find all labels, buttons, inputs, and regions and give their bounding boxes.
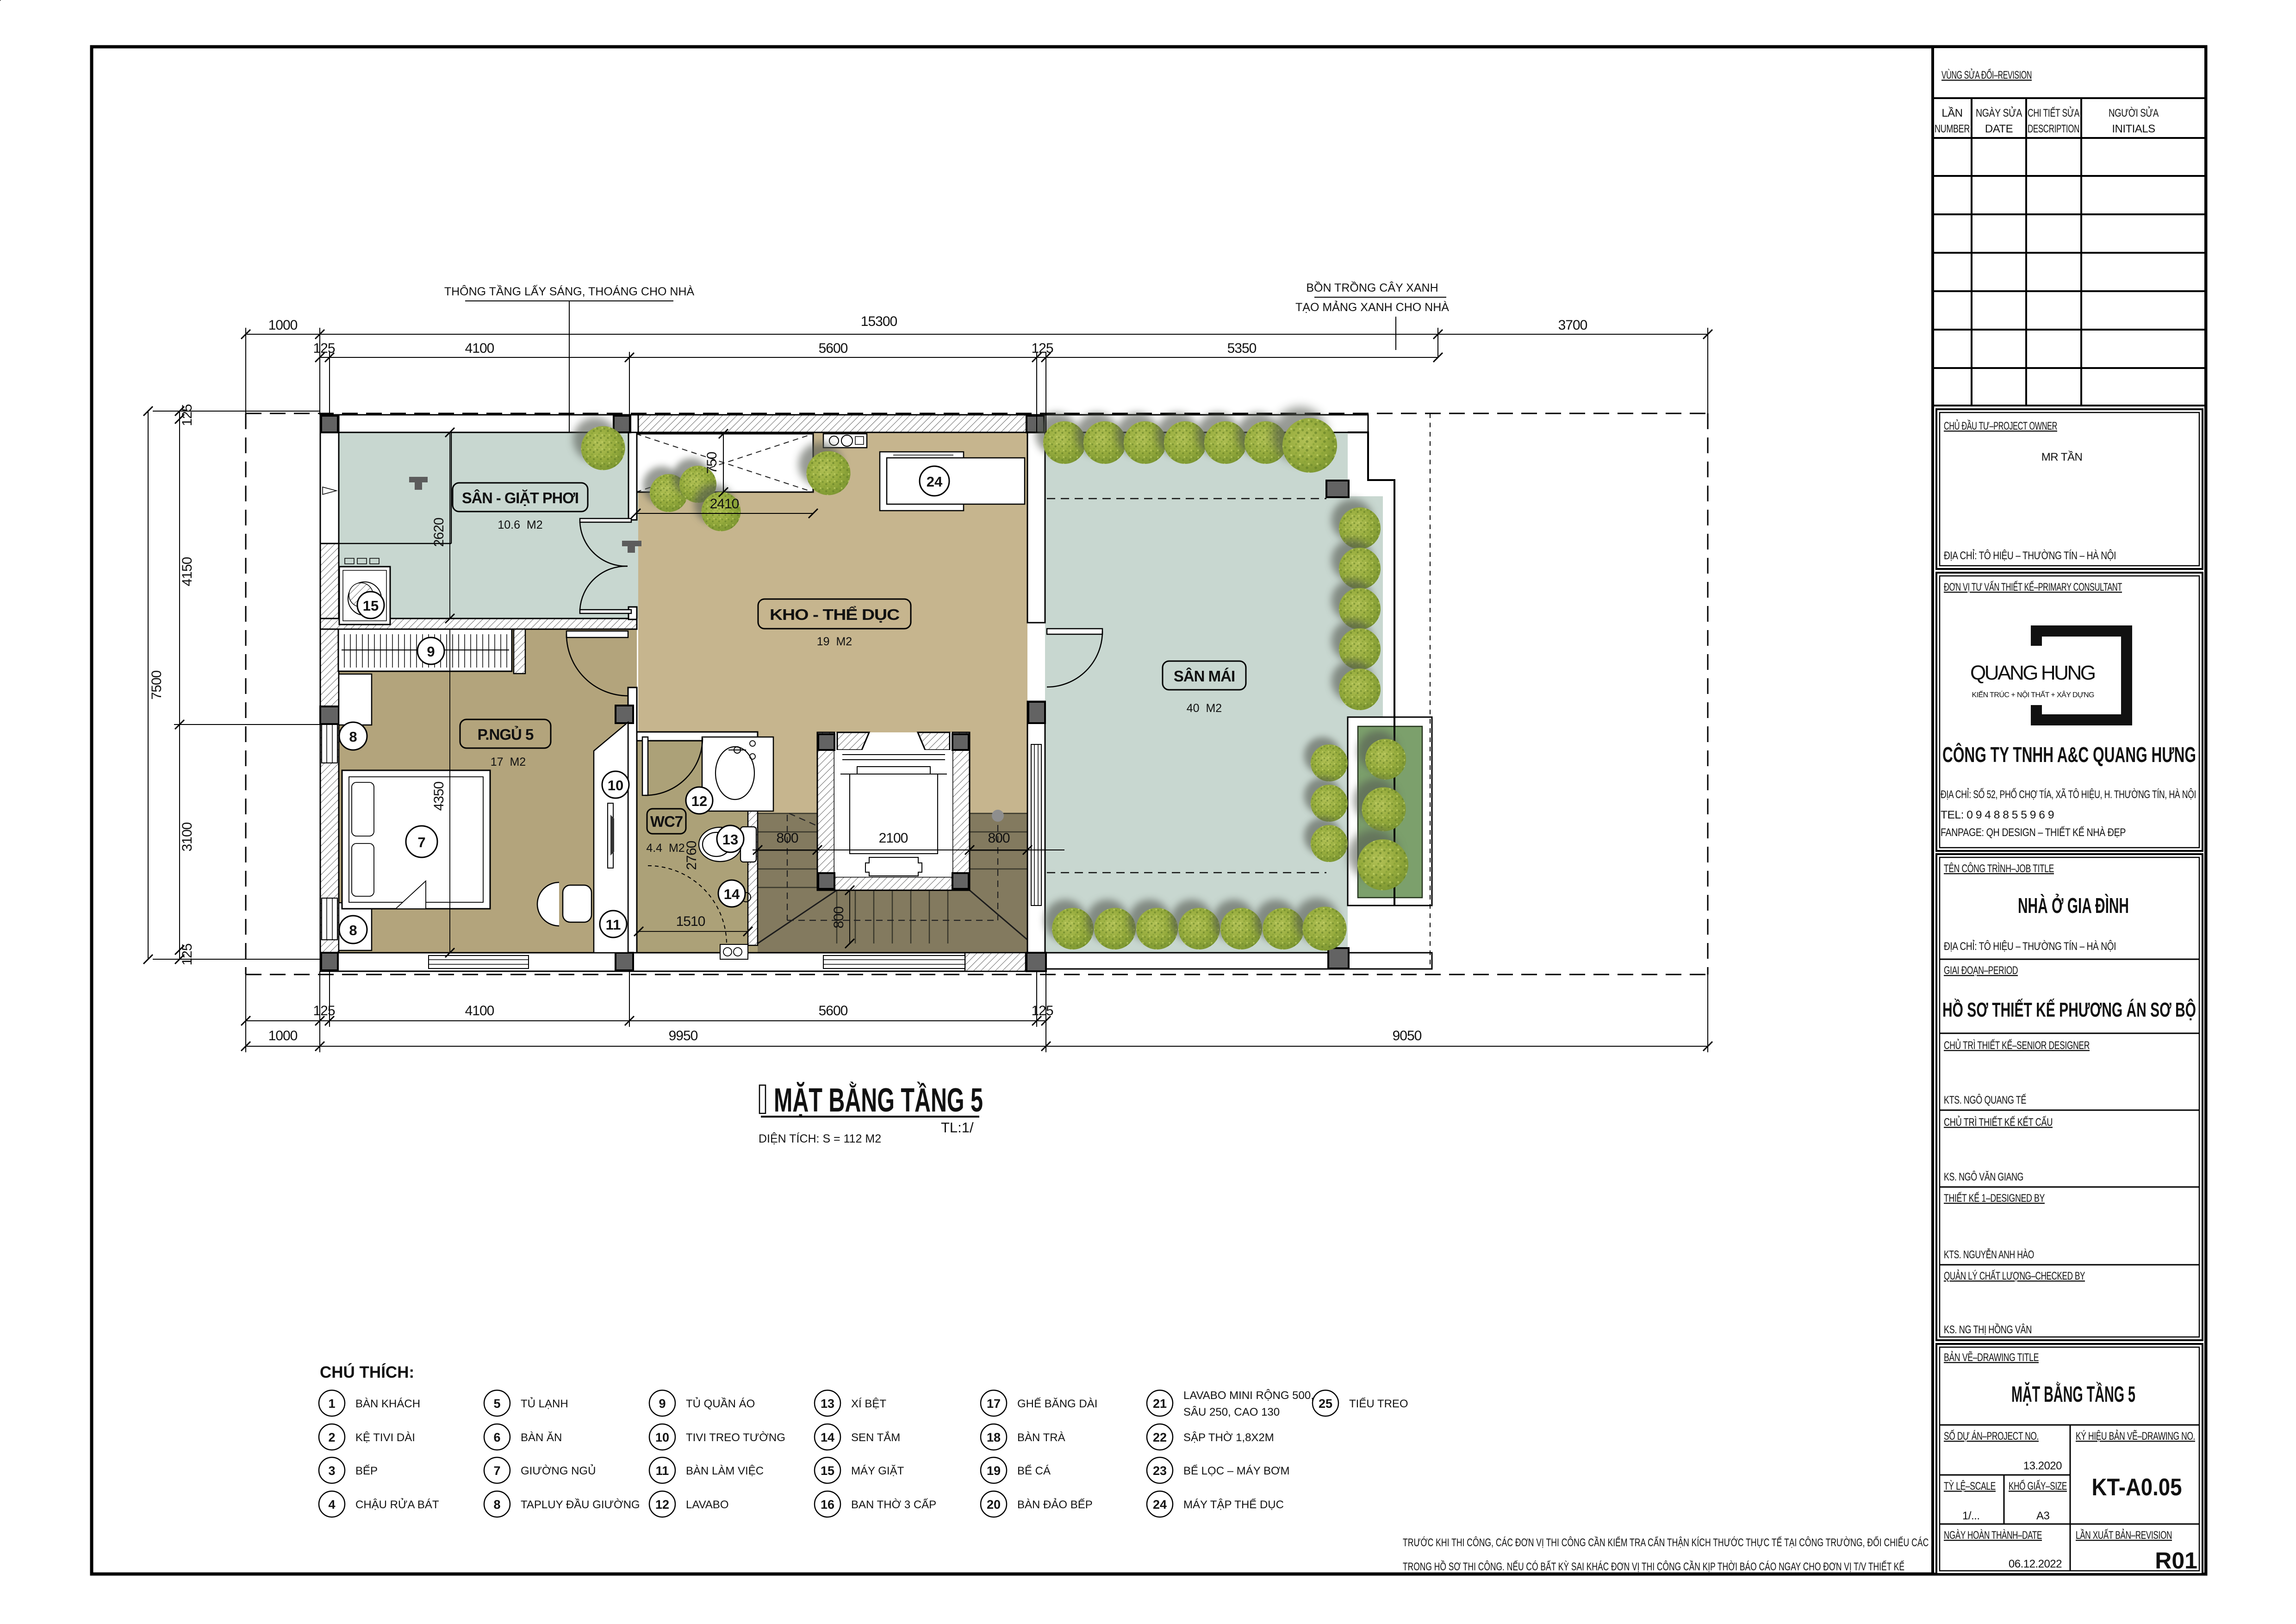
svg-text:TỲ LỆ–SCALE: TỲ LỆ–SCALE	[1944, 1480, 1996, 1493]
svg-text:BẢN VẼ–DRAWING TITLE: BẢN VẼ–DRAWING TITLE	[1944, 1350, 2039, 1364]
svg-text:3100: 3100	[180, 822, 195, 851]
svg-text:CÔNG TY TNHH A&C QUANG HƯNG: CÔNG TY TNHH A&C QUANG HƯNG	[1942, 743, 2196, 767]
svg-text:LAVABO MINI RỘNG 500,: LAVABO MINI RỘNG 500,	[1183, 1389, 1314, 1402]
svg-text:KHO - THỂ DỤC: KHO - THỂ DỤC	[770, 606, 899, 623]
svg-text:BÀN ĂN: BÀN ĂN	[521, 1431, 562, 1444]
svg-text:9050: 9050	[1393, 1028, 1422, 1043]
svg-text:20: 20	[987, 1498, 1001, 1512]
svg-text:SÂN MÁI: SÂN MÁI	[1174, 668, 1235, 685]
svg-text:40 M2: 40 M2	[1187, 702, 1222, 715]
svg-text:17: 17	[987, 1397, 1001, 1411]
svg-text:VÙNG SỬA ĐỔI–REVISION: VÙNG SỬA ĐỔI–REVISION	[1941, 68, 2032, 81]
svg-text:KS. NGÔ VĂN GIANG: KS. NGÔ VĂN GIANG	[1944, 1170, 2023, 1183]
svg-text:1000: 1000	[268, 318, 298, 333]
svg-text:17 M2: 17 M2	[491, 756, 526, 768]
svg-text:15300: 15300	[861, 314, 897, 329]
svg-text:7500: 7500	[149, 670, 164, 700]
svg-text:1/...: 1/...	[1962, 1510, 1980, 1522]
svg-text:15: 15	[821, 1464, 834, 1478]
svg-text:1: 1	[328, 1397, 335, 1411]
svg-text:3700: 3700	[1558, 318, 1587, 333]
svg-text:21: 21	[1153, 1397, 1167, 1411]
svg-text:11: 11	[656, 1464, 669, 1478]
svg-text:4: 4	[328, 1498, 335, 1512]
svg-text:15: 15	[363, 598, 379, 614]
svg-text:4350: 4350	[431, 781, 447, 811]
svg-text:SÂU 250, CAO 130: SÂU 250, CAO 130	[1183, 1406, 1280, 1418]
svg-text:DATE: DATE	[1985, 123, 2013, 135]
svg-text:TRONG HỒ SƠ THI CÔNG. NẾU CÓ B: TRONG HỒ SƠ THI CÔNG. NẾU CÓ BẤT KỲ SAI …	[1403, 1560, 1904, 1573]
svg-text:800: 800	[831, 906, 846, 928]
svg-text:14: 14	[724, 886, 740, 902]
svg-text:WC7: WC7	[650, 813, 683, 830]
svg-text:TỦ QUẦN ÁO: TỦ QUẦN ÁO	[686, 1397, 755, 1410]
svg-text:ĐƠN VỊ TƯ VẤN THIẾT KẾ–PRIMARY: ĐƠN VỊ TƯ VẤN THIẾT KẾ–PRIMARY CONSULTAN…	[1944, 581, 2122, 593]
svg-text:BÀN ĐẢO BẾP: BÀN ĐẢO BẾP	[1017, 1498, 1093, 1511]
svg-text:3: 3	[328, 1464, 335, 1478]
svg-text:8: 8	[493, 1498, 500, 1512]
svg-text:FANPAGE: QH DESIGN – THIẾT KẾ: FANPAGE: QH DESIGN – THIẾT KẾ NHÀ ĐẸP	[1941, 826, 2126, 839]
svg-text:LẦN XUẤT BẢN–REVISION: LẦN XUẤT BẢN–REVISION	[2076, 1528, 2172, 1542]
svg-text:24: 24	[927, 474, 943, 490]
svg-text:TRƯỚC KHI THI CÔNG, CÁC ĐƠN VỊ: TRƯỚC KHI THI CÔNG, CÁC ĐƠN VỊ THI CÔNG …	[1403, 1536, 1955, 1549]
svg-text:ĐỊA CHỈ: TÔ HIỆU – THƯỜNG TÍN: ĐỊA CHỈ: TÔ HIỆU – THƯỜNG TÍN – HÀ NỘI	[1944, 939, 2116, 953]
svg-text:13: 13	[722, 831, 738, 848]
svg-text:NGƯỜI SỬA: NGƯỜI SỬA	[2109, 106, 2159, 119]
svg-text:8: 8	[349, 922, 357, 938]
svg-text:TẠO MẢNG XANH CHO NHÀ: TẠO MẢNG XANH CHO NHÀ	[1295, 300, 1449, 314]
svg-text:NHÀ Ở GIA ĐÌNH: NHÀ Ở GIA ĐÌNH	[2018, 893, 2129, 918]
svg-text:MẶT BẰNG TẦNG 5: MẶT BẰNG TẦNG 5	[2011, 1382, 2135, 1407]
svg-text:KỆ TIVI DÀI: KỆ TIVI DÀI	[355, 1431, 415, 1444]
svg-text:HỒ SƠ THIẾT KẾ PHƯƠNG ÁN SƠ BỘ: HỒ SƠ THIẾT KẾ PHƯƠNG ÁN SƠ BỘ	[1942, 998, 2196, 1021]
svg-text:KHỔ GIẤY–SIZE: KHỔ GIẤY–SIZE	[2009, 1480, 2067, 1493]
svg-text:ĐỊA CHỈ: SỐ 52, PHỐ CHỢ TÍA, X: ĐỊA CHỈ: SỐ 52, PHỐ CHỢ TÍA, XÃ TÔ HIỆU,…	[1941, 787, 2196, 801]
svg-text:ĐỊA CHỈ: TÔ HIỆU – THƯỜNG TÍN: ĐỊA CHỈ: TÔ HIỆU – THƯỜNG TÍN – HÀ NỘI	[1944, 549, 2116, 562]
svg-text:KT-A0.05: KT-A0.05	[2092, 1474, 2182, 1501]
svg-text:P.NGỦ 5: P.NGỦ 5	[478, 726, 534, 743]
svg-text:06.12.2022: 06.12.2022	[2009, 1558, 2062, 1570]
svg-text:NGÀY HOÀN THÀNH–DATE: NGÀY HOÀN THÀNH–DATE	[1944, 1529, 2042, 1542]
svg-text:6: 6	[493, 1430, 500, 1444]
svg-text:KIẾN TRÚC + NỘI THẤT + XÂY DỰN: KIẾN TRÚC + NỘI THẤT + XÂY DỰNG	[1972, 690, 2095, 699]
svg-text:1510: 1510	[676, 914, 705, 929]
svg-text:QUẢN LÝ CHẤT LƯỢNG–CHECKED BY: QUẢN LÝ CHẤT LƯỢNG–CHECKED BY	[1944, 1269, 2085, 1282]
svg-text:SẬP THỜ 1,8X2M: SẬP THỜ 1,8X2M	[1183, 1431, 1274, 1444]
svg-text:9950: 9950	[669, 1028, 698, 1043]
svg-text:TEL: 0 9 4 8 8 5 5 9 6 9: TEL: 0 9 4 8 8 5 5 9 6 9	[1941, 809, 2054, 821]
svg-text:KTS. NGUYỄN ANH HÀO: KTS. NGUYỄN ANH HÀO	[1944, 1248, 2034, 1261]
svg-text:4100: 4100	[465, 341, 494, 356]
svg-text:9: 9	[659, 1397, 666, 1411]
svg-text:2410: 2410	[710, 496, 739, 512]
svg-text:TÊN CÔNG TRÌNH–JOB TITLE: TÊN CÔNG TRÌNH–JOB TITLE	[1944, 862, 2054, 875]
svg-text:CHẬU RỬA BÁT: CHẬU RỬA BÁT	[355, 1498, 439, 1511]
svg-text:125: 125	[1031, 1003, 1053, 1018]
svg-text:DESCRIPTION: DESCRIPTION	[2028, 123, 2079, 135]
svg-text:9: 9	[427, 643, 435, 660]
svg-text:8: 8	[349, 729, 357, 745]
svg-text:BAN THỜ 3 CẤP: BAN THỜ 3 CẤP	[851, 1498, 936, 1511]
svg-text:13: 13	[821, 1397, 834, 1411]
svg-text:BÀN TRÀ: BÀN TRÀ	[1017, 1431, 1065, 1444]
svg-text:10: 10	[608, 777, 623, 793]
svg-text:16: 16	[821, 1498, 834, 1512]
svg-text:7: 7	[417, 834, 425, 850]
svg-text:125: 125	[180, 404, 195, 426]
svg-text:GIƯỜNG NGỦ: GIƯỜNG NGỦ	[521, 1464, 596, 1477]
svg-text:QUANG HUNG: QUANG HUNG	[1970, 662, 2096, 684]
svg-text:2: 2	[328, 1430, 335, 1444]
svg-text:12: 12	[655, 1498, 669, 1512]
svg-text:10.6 M2: 10.6 M2	[498, 518, 542, 531]
svg-text:MẶT BẰNG TẦNG 5: MẶT BẰNG TẦNG 5	[774, 1081, 983, 1119]
svg-text:750: 750	[704, 452, 720, 474]
svg-text:NUMBER: NUMBER	[1935, 123, 1970, 135]
svg-text:CHỦ ĐẦU TƯ–PROJECT OWNER: CHỦ ĐẦU TƯ–PROJECT OWNER	[1944, 419, 2057, 432]
svg-text:TIỂU TREO: TIỂU TREO	[1349, 1397, 1408, 1410]
svg-text:13.2020: 13.2020	[2023, 1460, 2062, 1472]
svg-text:TL:1/: TL:1/	[941, 1119, 974, 1136]
svg-text:125: 125	[313, 341, 335, 356]
svg-text:125: 125	[180, 943, 195, 965]
svg-text:1000: 1000	[268, 1028, 298, 1043]
svg-text:A3: A3	[2036, 1510, 2050, 1522]
svg-text:TỦ LẠNH: TỦ LẠNH	[521, 1397, 568, 1410]
svg-text:5600: 5600	[819, 341, 848, 356]
svg-text:KS. NG THỊ HỒNG VÂN: KS. NG THỊ HỒNG VÂN	[1944, 1323, 2032, 1336]
svg-text:BỂ LỌC – MÁY BƠM: BỂ LỌC – MÁY BƠM	[1183, 1464, 1290, 1477]
svg-text:LAVABO: LAVABO	[686, 1499, 728, 1511]
svg-text:CHỦ TRÌ THIẾT KẾ–SENIOR DESIGN: CHỦ TRÌ THIẾT KẾ–SENIOR DESIGNER	[1944, 1038, 2090, 1052]
svg-text:GIAI ĐOẠN–PERIOD: GIAI ĐOẠN–PERIOD	[1944, 964, 2018, 977]
svg-text:19: 19	[987, 1464, 1001, 1478]
svg-text:24: 24	[1153, 1498, 1167, 1512]
svg-text:INITIALS: INITIALS	[2112, 123, 2155, 135]
svg-text:R01: R01	[2155, 1548, 2197, 1574]
svg-text:NGÀY SỬA: NGÀY SỬA	[1976, 106, 2022, 119]
svg-text:BỒN TRỒNG CÂY XANH: BỒN TRỒNG CÂY XANH	[1306, 281, 1438, 294]
svg-text:5: 5	[493, 1397, 500, 1411]
svg-text:BẾP: BẾP	[355, 1464, 378, 1477]
svg-text:LẦN: LẦN	[1941, 106, 1962, 119]
svg-text:BỂ CÁ: BỂ CÁ	[1017, 1464, 1051, 1477]
svg-text:4.4 M2: 4.4 M2	[646, 842, 684, 855]
svg-text:THIẾT KẾ 1–DESIGNED BY: THIẾT KẾ 1–DESIGNED BY	[1944, 1192, 2045, 1205]
svg-text:TAPLUY ĐẦU GIƯỜNG: TAPLUY ĐẦU GIƯỜNG	[521, 1498, 640, 1511]
svg-text:5350: 5350	[1227, 341, 1257, 356]
svg-text:SỐ DỰ ÁN–PROJECT NO.: SỐ DỰ ÁN–PROJECT NO.	[1944, 1430, 2039, 1443]
svg-text:DIỆN TÍCH: S = 112 M2: DIỆN TÍCH: S = 112 M2	[759, 1132, 881, 1145]
svg-text:19 M2: 19 M2	[817, 635, 852, 648]
svg-text:125: 125	[1031, 341, 1053, 356]
svg-text:SEN TẮM: SEN TẮM	[851, 1431, 900, 1444]
svg-text:CHÚ THÍCH:: CHÚ THÍCH:	[320, 1363, 414, 1381]
svg-text:KÝ HIỆU BẢN VẼ–DRAWING NO.: KÝ HIỆU BẢN VẼ–DRAWING NO.	[2076, 1429, 2195, 1443]
svg-text:MÁY GIẶT: MÁY GIẶT	[851, 1465, 904, 1477]
svg-text:CHI TIẾT SỬA: CHI TIẾT SỬA	[2028, 106, 2079, 119]
svg-text:125: 125	[313, 1003, 335, 1018]
svg-text:SÂN - GIẶT PHƠI: SÂN - GIẶT PHƠI	[462, 489, 579, 506]
svg-text:MR TẦN: MR TẦN	[2041, 450, 2083, 463]
svg-text:MÁY TẬP THỂ DỤC: MÁY TẬP THỂ DỤC	[1183, 1498, 1284, 1511]
svg-text:2620: 2620	[431, 518, 447, 547]
svg-text:4100: 4100	[465, 1003, 494, 1018]
svg-text:KTS. NGÔ QUANG TẾ: KTS. NGÔ QUANG TẾ	[1944, 1093, 2026, 1106]
svg-text:5600: 5600	[819, 1003, 848, 1018]
svg-text:11: 11	[606, 917, 621, 933]
svg-text:22: 22	[1153, 1430, 1167, 1444]
svg-text:CHỦ TRÌ THIẾT KẾ KẾT CẤU: CHỦ TRÌ THIẾT KẾ KẾT CẤU	[1944, 1115, 2053, 1129]
svg-text:800: 800	[988, 831, 1009, 846]
svg-text:12: 12	[691, 793, 707, 809]
svg-text:4150: 4150	[180, 557, 195, 586]
svg-text:TIVI TREO TƯỜNG: TIVI TREO TƯỜNG	[686, 1431, 785, 1444]
svg-text:BÀN KHÁCH: BÀN KHÁCH	[355, 1398, 420, 1410]
svg-text:XÍ BỆT: XÍ BỆT	[851, 1398, 886, 1410]
svg-text:800: 800	[776, 831, 798, 846]
svg-text:10: 10	[655, 1430, 669, 1444]
svg-text:25: 25	[1319, 1397, 1332, 1411]
svg-text:18: 18	[987, 1430, 1001, 1444]
svg-text:23: 23	[1153, 1464, 1167, 1478]
svg-text:14: 14	[821, 1430, 834, 1444]
svg-text:2760: 2760	[684, 841, 699, 870]
svg-text:THÔNG TẦNG LẤY SÁNG, THOÁNG CH: THÔNG TẦNG LẤY SÁNG, THOÁNG CHO NHÀ	[444, 285, 695, 298]
svg-text:BÀN LÀM VIỆC: BÀN LÀM VIỆC	[686, 1465, 764, 1477]
svg-text:GHẾ BĂNG DÀI: GHẾ BĂNG DÀI	[1017, 1397, 1097, 1410]
svg-text:7: 7	[493, 1464, 500, 1478]
svg-text:2100: 2100	[879, 831, 908, 846]
